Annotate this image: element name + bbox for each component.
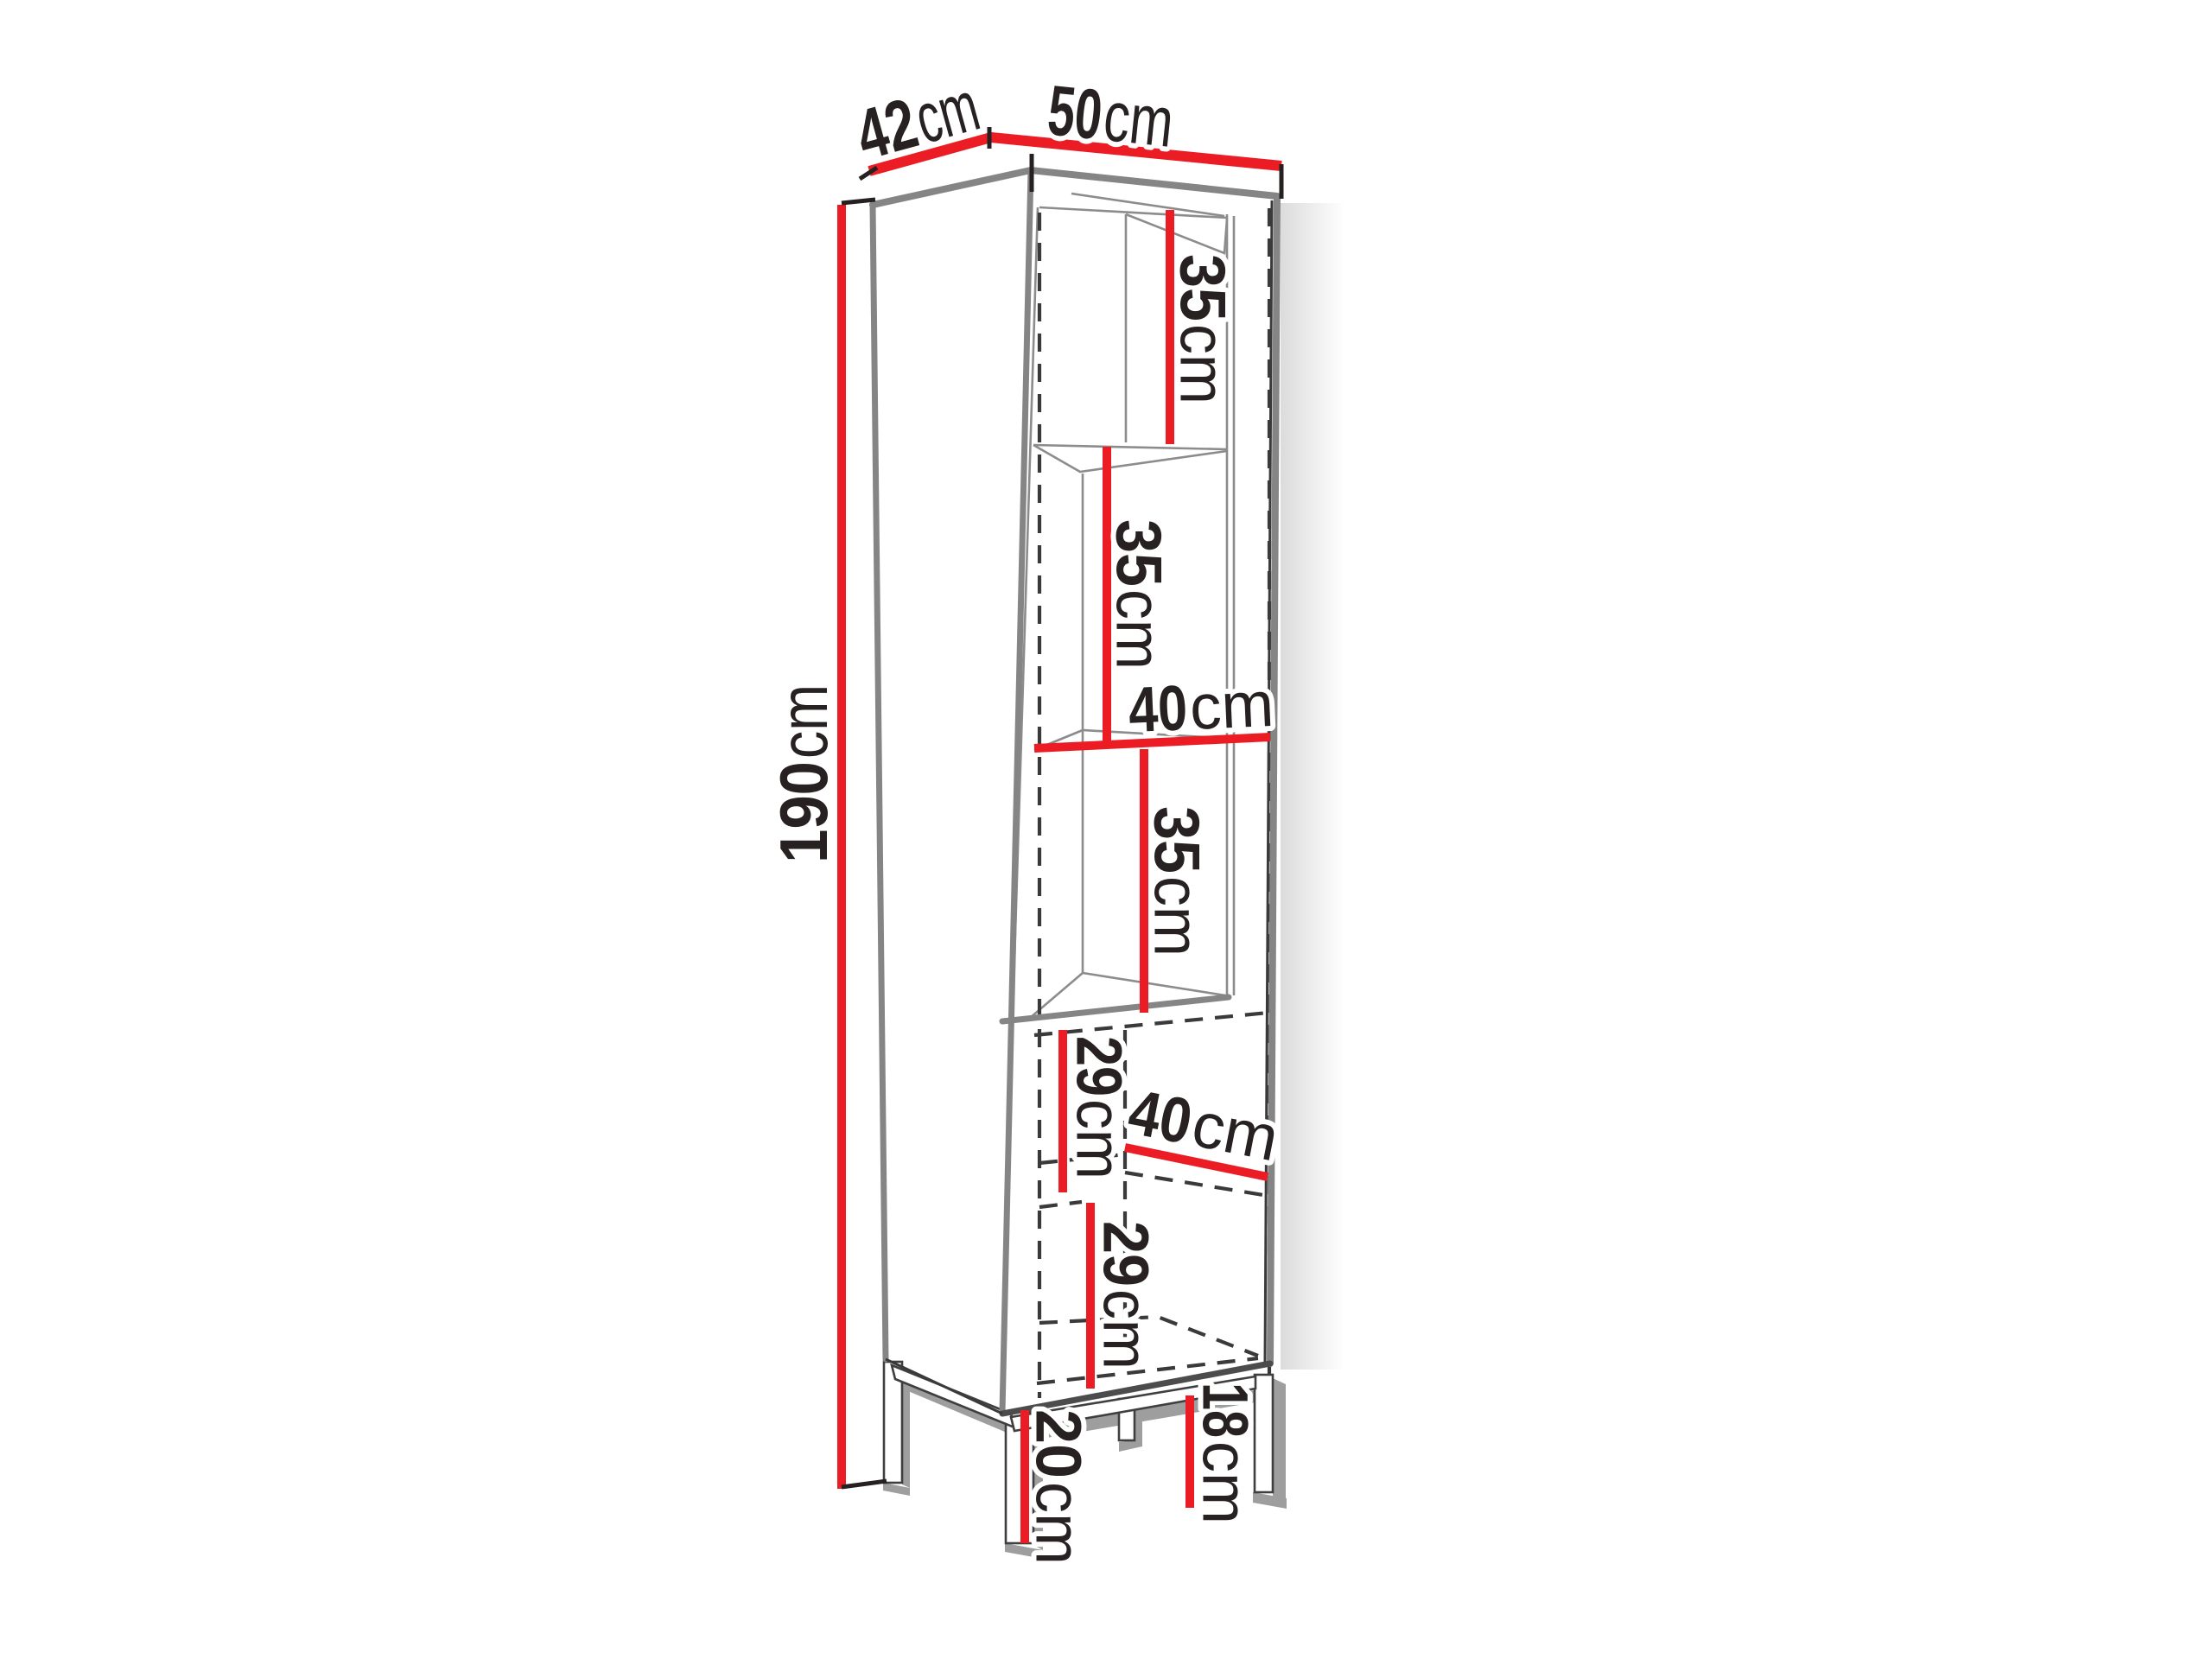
height-unit: cm bbox=[766, 684, 842, 759]
dim-label-height: 190 cm bbox=[766, 684, 842, 863]
shelf-top-value: 35 bbox=[1167, 254, 1239, 321]
inner-width-value: 40 bbox=[1127, 671, 1189, 746]
shelf-upper-unit: cm bbox=[1103, 589, 1175, 670]
width-value: 50 bbox=[1045, 71, 1106, 155]
dim-label-door-upper: 29 cm bbox=[1064, 1036, 1135, 1179]
door-lower-value: 29 bbox=[1090, 1221, 1162, 1287]
cabinet-dimension-diagram: 42 cm 50 cm 190 cm 35 cm 35 cm 40 cm 35 … bbox=[0, 0, 2212, 1659]
inner-width-unit: cm bbox=[1188, 668, 1275, 743]
shelf-upper-value: 35 bbox=[1103, 519, 1175, 587]
dim-label-shelf-upper: 35 cm bbox=[1103, 519, 1175, 670]
height-value: 190 bbox=[766, 761, 842, 863]
dim-label-depth: 42 cm bbox=[848, 67, 987, 175]
width-unit: cm bbox=[1100, 77, 1177, 162]
door-lower-unit: cm bbox=[1090, 1289, 1162, 1370]
dim-label-leg-back: 18 cm bbox=[1190, 1382, 1262, 1524]
shelf-lower-unit: cm bbox=[1141, 876, 1213, 957]
dim-label-shelf-lower: 35 cm bbox=[1141, 806, 1213, 957]
diagram-canvas: 42 cm 50 cm 190 cm 35 cm 35 cm 40 cm 35 … bbox=[0, 0, 2212, 1659]
dim-label-door-lower: 29 cm bbox=[1090, 1221, 1162, 1370]
leg-back-unit: cm bbox=[1190, 1441, 1262, 1524]
dim-label-width: 50 cm bbox=[1045, 71, 1178, 162]
shelf-top-unit: cm bbox=[1167, 324, 1239, 404]
dim-label-shelf-top: 35 cm bbox=[1167, 254, 1239, 404]
dim-label-inner-width: 40 cm bbox=[1127, 668, 1274, 746]
dim-label-leg-front: 20 cm bbox=[1023, 1409, 1095, 1565]
cabinet-right-shadow bbox=[1281, 203, 1344, 1370]
shelf-lower-value: 35 bbox=[1141, 806, 1213, 874]
leg-back-value: 18 bbox=[1190, 1382, 1262, 1438]
leg-front-value: 20 bbox=[1023, 1409, 1095, 1478]
door-upper-value: 29 bbox=[1064, 1036, 1135, 1096]
leg-front-unit: cm bbox=[1023, 1482, 1095, 1565]
